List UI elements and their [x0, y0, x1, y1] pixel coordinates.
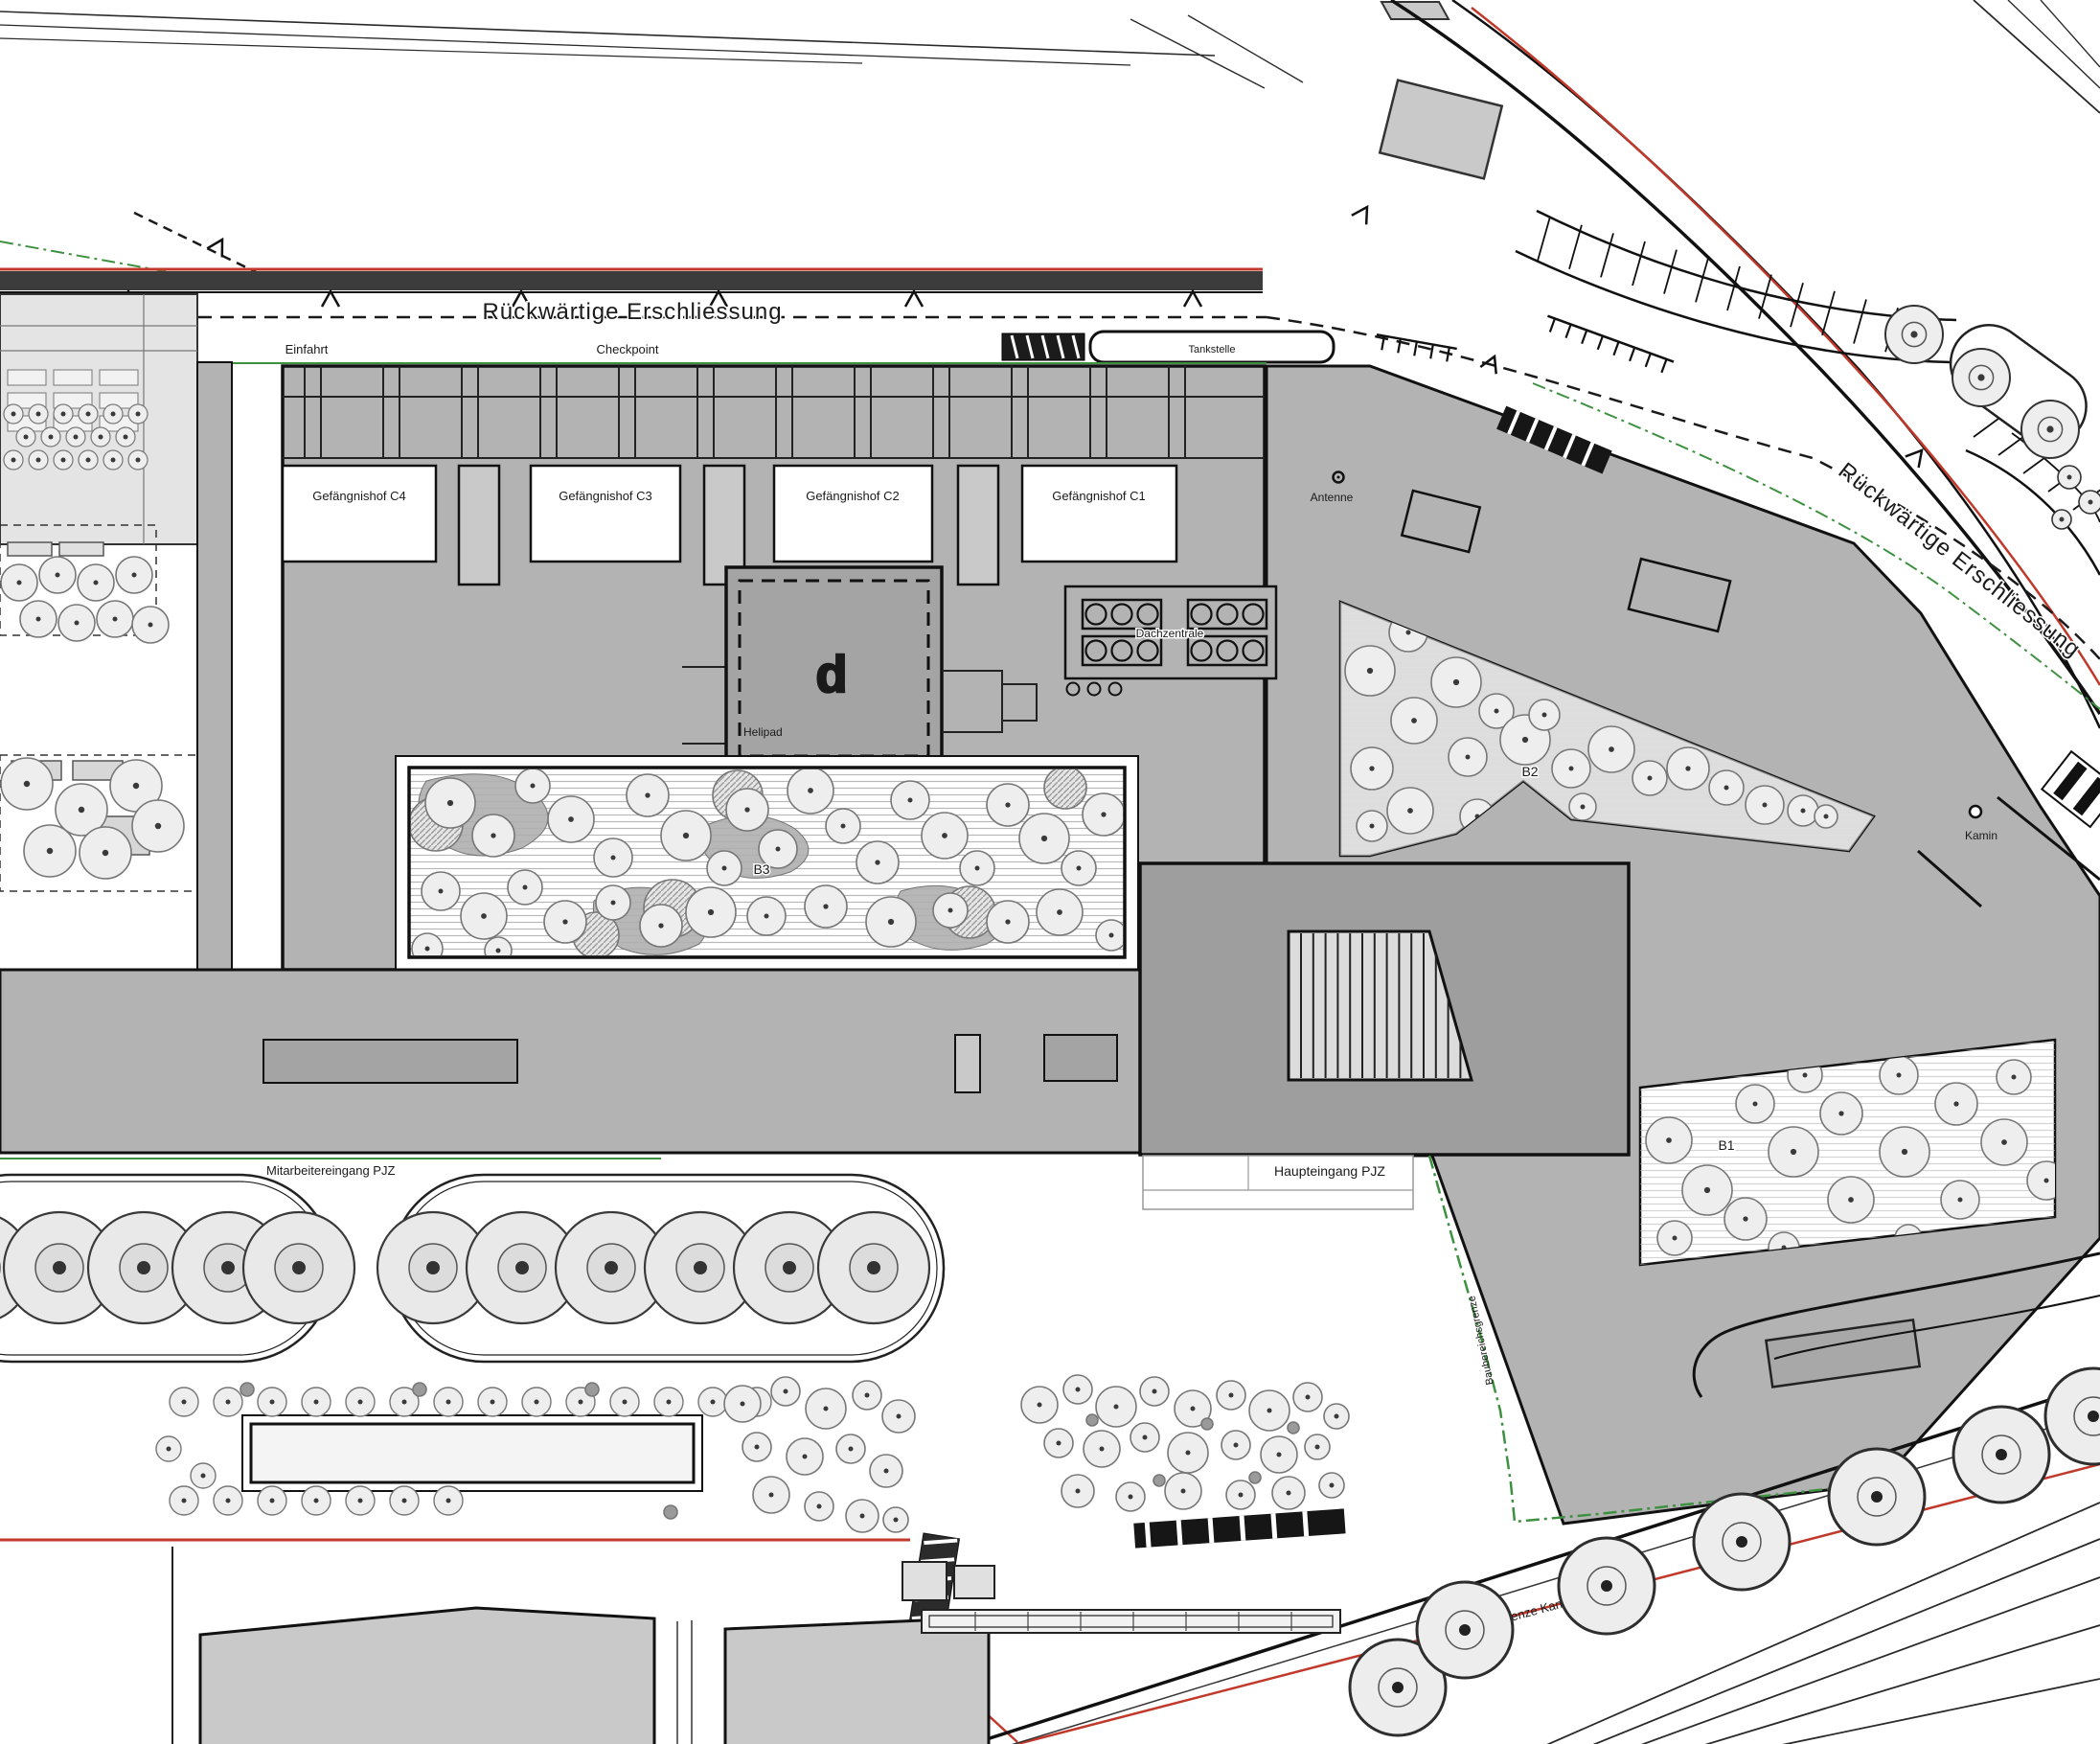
direction-arrow — [905, 291, 923, 307]
tree-dot — [1369, 766, 1374, 770]
tree-dot — [103, 850, 108, 856]
shelter-box — [902, 1562, 947, 1600]
tree-dot — [1648, 776, 1653, 781]
antenne-dot — [1337, 476, 1340, 479]
railway-lines-top — [0, 0, 2100, 113]
neighbor-building — [725, 1618, 989, 1744]
bush — [1044, 767, 1086, 809]
tree-cluster-south — [1021, 1375, 1349, 1511]
planter-tree-dot — [426, 1261, 440, 1274]
tree-dot — [711, 1400, 716, 1405]
tree — [1086, 1414, 1098, 1426]
crosswalk-slit — [1242, 1516, 1244, 1541]
courtyard-c2-label: Gefängnishof C2 — [806, 489, 900, 503]
tree-dot — [1704, 1187, 1710, 1193]
parking-tick — [1538, 217, 1550, 261]
tree-dot — [1791, 1149, 1796, 1155]
courtyard-c2 — [774, 466, 932, 562]
tree — [1249, 1472, 1261, 1483]
tree-dot — [1109, 933, 1114, 938]
crosswalk-bar — [1133, 1508, 1345, 1548]
parking-tick — [1696, 258, 1708, 302]
tree-dot — [2060, 517, 2065, 522]
tree-dot — [1801, 809, 1806, 814]
crosswalk-slit — [1147, 1523, 1149, 1548]
garden-b3: B3 — [396, 756, 1138, 970]
tree-dot — [1897, 1073, 1902, 1078]
checkpoint-label: Checkpoint — [596, 342, 658, 356]
direction-arrow — [322, 291, 339, 307]
tree-dot — [1239, 1493, 1244, 1498]
tree-dot — [61, 412, 66, 417]
corner-road — [1974, 0, 2100, 113]
tree-dot — [270, 1400, 275, 1405]
parking-tick — [1664, 250, 1677, 294]
tree-planter-west — [0, 1175, 354, 1362]
tree-dot — [722, 866, 727, 871]
tree — [1201, 1418, 1213, 1430]
tree-dot — [884, 1469, 889, 1474]
tree-dot — [1101, 812, 1106, 816]
tree-dot — [2012, 1075, 2017, 1080]
tree-dot — [49, 435, 54, 440]
tree-dot — [99, 435, 103, 440]
tree-dot — [1057, 909, 1062, 915]
tree-dot — [865, 1393, 870, 1398]
tree-dot — [226, 1400, 231, 1405]
tree-dot — [314, 1400, 319, 1405]
tree-dot — [817, 1504, 822, 1509]
parking-tick — [1632, 241, 1645, 286]
tree-dot — [133, 783, 139, 789]
tree-dot — [1191, 1407, 1196, 1411]
tree-dot — [1335, 1414, 1339, 1419]
site-plan: Rückwärtige Erschliessung Rückwärtige Er… — [0, 0, 2100, 1744]
tree-dot — [1041, 836, 1047, 841]
rail-line — [0, 11, 1215, 56]
tree-dot — [425, 947, 430, 952]
rotated-building — [1380, 80, 1502, 179]
courtyard-c1-label: Gefängnishof C1 — [1052, 489, 1146, 503]
tree-dot — [1953, 1101, 1958, 1106]
garden-trees-mid — [1, 557, 169, 643]
tree-dot — [744, 807, 749, 812]
direction-arrow — [207, 236, 230, 258]
tree-dot — [568, 816, 574, 822]
tree-dot — [776, 847, 781, 852]
tree-dot — [155, 823, 161, 829]
b2-label: B2 — [1521, 764, 1538, 779]
fence-tooth — [1630, 348, 1634, 361]
street-tree-dot — [1871, 1491, 1883, 1503]
tree-dot — [531, 784, 536, 789]
street-tree-dot — [1392, 1682, 1404, 1693]
tree-dot — [1185, 1450, 1190, 1455]
tree-planter-east — [377, 1175, 944, 1362]
parking-tick — [1974, 416, 2002, 437]
rail-switch — [1188, 15, 1303, 82]
tree-dot — [741, 1402, 745, 1407]
tree-dot — [645, 792, 650, 797]
tree-dot — [823, 1406, 828, 1411]
courtyard-c4-label: Gefängnishof C4 — [312, 489, 406, 503]
tree-dot — [860, 1514, 865, 1519]
tree-dot — [1666, 1137, 1672, 1143]
crosswalk-slit — [1305, 1511, 1307, 1536]
tankstelle-label: Tankstelle — [1189, 344, 1236, 356]
tree-dot — [496, 949, 501, 953]
tree-dot — [611, 901, 616, 906]
dachzentrale-label: Dachzentrale — [1136, 627, 1204, 640]
courtyard-c1 — [1022, 466, 1176, 562]
tree-dot — [447, 800, 453, 806]
tree-dot — [1153, 1389, 1157, 1394]
west-garden — [0, 294, 232, 970]
tree-dot — [36, 458, 41, 463]
canopy-grate — [1002, 333, 1084, 360]
shelter-box — [954, 1566, 994, 1598]
tree-dot — [1100, 1447, 1105, 1452]
tree-dot — [1902, 1149, 1907, 1155]
light-shaft — [958, 466, 998, 585]
platform-bar — [922, 1610, 1340, 1633]
tree-dot — [182, 1400, 187, 1405]
tree-dot — [1229, 1393, 1234, 1398]
canopy-skylight — [1044, 1035, 1117, 1081]
tree-dot — [708, 909, 714, 915]
planter-tree-dot — [694, 1261, 707, 1274]
tree-dot — [79, 807, 84, 813]
tree-dot — [1495, 709, 1499, 714]
tree-dot — [124, 435, 128, 440]
tree-dot — [784, 1389, 788, 1394]
tree-dot — [314, 1499, 319, 1503]
direction-arrow — [1352, 202, 1375, 224]
tree-dot — [1673, 1236, 1678, 1241]
tree-dot — [1542, 713, 1547, 718]
tree-dot — [182, 1499, 187, 1503]
tree-dot — [1910, 331, 1917, 337]
tree-dot — [111, 458, 116, 463]
tree-dot — [94, 581, 99, 585]
crosswalk-slit — [1273, 1514, 1275, 1539]
tree-dot — [755, 1445, 760, 1450]
tree-dot — [113, 617, 118, 622]
tree-dot — [803, 1455, 808, 1459]
tree-dot — [481, 913, 487, 919]
rail-line — [1701, 1625, 2100, 1744]
tree-dot — [402, 1400, 407, 1405]
crosswalk-south — [1133, 1508, 1345, 1548]
lot-arc — [1966, 450, 2100, 575]
tree-dot — [1005, 919, 1010, 924]
tree-dot — [1113, 1404, 1118, 1409]
planter-tree-dot — [221, 1261, 235, 1274]
tree-dot — [658, 923, 663, 928]
tree-dot — [358, 1499, 363, 1503]
tree-dot — [2067, 475, 2072, 480]
tree-dot — [897, 1414, 902, 1419]
tree-dot — [1569, 767, 1574, 771]
tree-dot — [875, 860, 879, 864]
direction-arrow — [1480, 353, 1502, 374]
einfahrt-label: Einfahrt — [285, 342, 329, 356]
fence-tooth — [1447, 348, 1449, 362]
tree-dot — [1763, 803, 1768, 808]
planting-bed — [100, 370, 138, 385]
tree-dot — [56, 573, 60, 578]
site-plan-svg: Rückwärtige Erschliessung Rückwärtige Er… — [0, 0, 2100, 1744]
garden-bar — [59, 542, 103, 556]
tree-dot — [1581, 805, 1586, 810]
tree-dot — [11, 458, 16, 463]
tree-dot — [562, 919, 567, 924]
tree-dot — [1824, 815, 1829, 819]
rail-line — [1638, 1577, 2100, 1744]
tree-dot — [948, 908, 953, 913]
tree-dot — [1370, 824, 1375, 829]
tree-dot — [446, 1400, 451, 1405]
courtyard-c3-label: Gefängnishof C3 — [559, 489, 652, 503]
b1-label: B1 — [1718, 1137, 1734, 1153]
tree — [240, 1383, 254, 1396]
tree-dot — [2001, 1139, 2007, 1145]
tree-dot — [136, 458, 141, 463]
canopy-skylight — [263, 1040, 517, 1083]
kamin-symbol — [1970, 806, 1981, 817]
tree-dot — [1724, 786, 1729, 791]
top-building-rotated — [1380, 80, 1502, 179]
tree-dot — [1466, 755, 1471, 760]
tree-dot — [1076, 1388, 1081, 1392]
north-wall-band — [0, 269, 1263, 292]
tree-dot — [523, 885, 528, 890]
tree-dot — [36, 617, 41, 622]
tree-dot — [491, 1400, 495, 1405]
street-tree-dot — [1996, 1449, 2007, 1460]
tree-dot — [1958, 1198, 1963, 1203]
tree-dot — [1411, 718, 1417, 723]
garden-bar — [8, 542, 52, 556]
tree — [413, 1383, 426, 1396]
planter-tree-dot — [605, 1261, 618, 1274]
tree-dot — [24, 435, 29, 440]
fence-tooth — [1550, 318, 1555, 332]
courtyard-c3 — [531, 466, 680, 562]
fence-comb — [1542, 316, 1674, 376]
tree-dot — [1076, 1489, 1081, 1494]
west-wing — [197, 362, 232, 970]
tree-dot — [491, 833, 495, 838]
tree-dot — [1277, 1453, 1282, 1457]
tree-dot — [888, 919, 894, 925]
tree-dot — [808, 788, 813, 793]
fence-tooth — [1613, 342, 1618, 356]
tree-dot — [201, 1474, 206, 1479]
tree-dot — [74, 435, 79, 440]
tree-dot — [136, 412, 141, 417]
tree-dot — [769, 1493, 774, 1498]
fence-tooth — [1661, 359, 1666, 373]
parking-arc-top — [1537, 211, 1956, 320]
tree-dot — [841, 824, 846, 829]
b3-label: B3 — [753, 861, 769, 877]
street-tree-dot — [1736, 1536, 1747, 1548]
tree-dot — [439, 889, 444, 894]
tree-dot — [86, 458, 91, 463]
tree-dot — [1848, 1197, 1854, 1203]
crosswalk-kamin — [2042, 751, 2100, 827]
parking-tick — [1569, 225, 1582, 269]
planter-tree-dot — [292, 1261, 306, 1274]
planter-tree-dot — [783, 1261, 796, 1274]
planter-trees — [0, 1212, 354, 1323]
tree-dot — [402, 1499, 407, 1503]
crosswalk-slit — [1178, 1520, 1180, 1545]
tree-dot — [942, 833, 947, 838]
tree-dot — [765, 914, 769, 919]
tree-dot — [1753, 1102, 1758, 1107]
tree-dot — [36, 412, 41, 417]
rail-line — [0, 25, 1130, 65]
tree-dot — [111, 412, 116, 417]
tree-dot — [2089, 500, 2093, 505]
fence-tooth — [1582, 331, 1586, 344]
tree-dot — [1367, 668, 1373, 674]
tree — [664, 1505, 677, 1519]
tree-dot — [24, 781, 30, 787]
tree-dot — [1453, 679, 1459, 685]
fence-tooth — [1565, 324, 1570, 337]
tree-dot — [270, 1499, 275, 1503]
tree-dot — [1838, 1111, 1843, 1115]
staff-entrance-label: Mitarbeitereingang PJZ — [266, 1163, 395, 1178]
tree-dot — [1407, 808, 1413, 814]
street-tree-dot — [1601, 1580, 1612, 1592]
tree-dot — [535, 1400, 539, 1405]
tree-dot — [975, 866, 980, 871]
prison-building: Gefängnishof C4 Gefängnishof C3 Gefängni… — [283, 366, 1276, 970]
wall-band — [0, 271, 1263, 290]
fence-tooth — [1430, 345, 1433, 359]
tree-dot — [226, 1499, 231, 1503]
corner-road — [2041, 0, 2100, 67]
tree-dot — [1057, 1441, 1061, 1446]
helipad-mark: d — [816, 646, 848, 703]
tree-dot — [1005, 802, 1010, 807]
direction-arrow — [1184, 291, 1201, 307]
fence-tooth — [1646, 354, 1651, 367]
tree-dot — [1181, 1489, 1186, 1494]
tree-dot — [1803, 1073, 1808, 1078]
street-tree-dot — [1459, 1624, 1471, 1636]
tree-dot — [47, 848, 53, 854]
light-shaft — [459, 466, 499, 585]
tree-dot — [1330, 1483, 1335, 1488]
tree-dot — [1077, 866, 1082, 871]
tree-dot — [623, 1400, 628, 1405]
parking-tick — [1854, 300, 1866, 344]
tree-dot — [667, 1400, 672, 1405]
parking-tick — [1822, 291, 1835, 335]
tree-dot — [579, 1400, 583, 1405]
tree-dot — [1267, 1408, 1271, 1412]
kamin-label: Kamin — [1965, 829, 1997, 842]
fence-tooth — [1414, 342, 1417, 356]
fence-line — [1547, 316, 1674, 362]
tree-dot — [1306, 1395, 1311, 1400]
planter-tree-dot — [867, 1261, 880, 1274]
canopy-shaft — [955, 1035, 980, 1092]
rail-line — [1590, 1539, 2100, 1744]
dachzentrale: Dachzentrale — [1065, 586, 1276, 696]
tree-dot — [1287, 1491, 1291, 1496]
tree-dot — [1129, 1495, 1133, 1500]
tree-dot — [683, 833, 689, 838]
tree-dot — [823, 904, 828, 908]
tree-dot — [908, 798, 913, 803]
tree-dot — [1315, 1445, 1320, 1450]
planter-tree-dot — [515, 1261, 529, 1274]
tree-dot — [2044, 1179, 2049, 1183]
tree-dot — [11, 412, 16, 417]
planting-bed — [8, 370, 46, 385]
tree-dot — [1406, 631, 1411, 635]
pergola-inner — [251, 1424, 694, 1482]
rail-line — [1777, 1679, 2100, 1744]
planter-tree-dot — [53, 1261, 66, 1274]
tree-dot — [1685, 766, 1690, 770]
pergola — [242, 1415, 702, 1491]
tree-dot — [1038, 1403, 1042, 1408]
tree-dot — [1609, 746, 1614, 752]
main-entrance-label: Haupteingang PJZ — [1274, 1163, 1385, 1179]
tree-dot — [446, 1499, 451, 1503]
neighbor-building — [200, 1608, 654, 1744]
parking-tick — [1791, 283, 1803, 327]
tree-cluster-mid — [724, 1377, 915, 1532]
planter-tree-dot — [137, 1261, 150, 1274]
tree — [1153, 1475, 1165, 1486]
tree-dot — [86, 412, 91, 417]
planting-bed — [54, 370, 92, 385]
tree-dot — [1143, 1435, 1148, 1440]
fence-tooth — [1598, 336, 1603, 350]
tree-dot — [611, 856, 616, 861]
tree-dot — [1743, 1216, 1747, 1221]
tree-dot — [894, 1518, 899, 1523]
helipad-label: Helipad — [743, 725, 783, 739]
tree-dot — [1977, 374, 1984, 380]
antenne-label: Antenne — [1311, 491, 1354, 504]
tree-dot — [1522, 737, 1528, 743]
tree-dot — [849, 1447, 854, 1452]
tree-dot — [358, 1400, 363, 1405]
rear-access-label-top: Rückwärtige Erschliessung — [482, 299, 782, 325]
crosswalk-slit — [1210, 1518, 1212, 1543]
tree — [585, 1383, 599, 1396]
tree-dot — [61, 458, 66, 463]
street-tree-dot — [2088, 1411, 2099, 1422]
tree-dot — [2046, 425, 2053, 432]
tree-dot — [148, 623, 153, 628]
tree-dot — [75, 621, 80, 626]
tree-dot — [132, 573, 137, 578]
tree-dot — [17, 581, 22, 585]
tree-dot — [1234, 1443, 1239, 1448]
courtyard-c4 — [283, 466, 436, 562]
tree — [1288, 1422, 1299, 1434]
